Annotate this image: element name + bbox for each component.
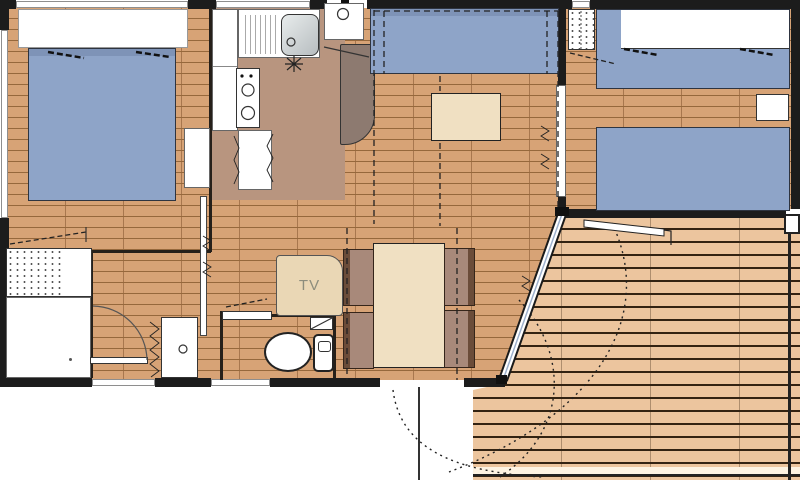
shower-drain — [69, 358, 72, 361]
window — [16, 1, 188, 8]
stove — [236, 68, 260, 128]
chair-back — [468, 249, 474, 305]
wardrobe-left — [6, 248, 92, 297]
wall-bottom — [270, 378, 380, 387]
entrance-door-leaf — [161, 317, 198, 378]
chair-back — [468, 311, 474, 367]
window — [211, 379, 270, 386]
bathroom-door-leaf — [90, 357, 148, 364]
terrace-rail-right — [788, 217, 791, 480]
bedroom2-door — [556, 85, 566, 197]
kitchen-sink-unit — [238, 9, 320, 58]
flush-button — [318, 341, 331, 352]
window — [216, 1, 310, 8]
terrace-rail-bottom — [473, 467, 800, 476]
bedroom1-cabinet — [184, 128, 210, 188]
dining-chair — [444, 310, 475, 368]
tv-cabinet: TV — [276, 255, 343, 316]
sofa-backrest — [371, 9, 558, 16]
double-bed — [28, 48, 176, 201]
sink-bowl — [281, 14, 319, 56]
coffee-table — [431, 93, 501, 141]
cabinet-divider — [213, 66, 237, 67]
water-heater — [324, 3, 364, 40]
wall-top — [590, 0, 800, 9]
nightstand — [756, 94, 789, 121]
wall-left — [0, 0, 9, 30]
wardrobe-right — [568, 9, 595, 50]
toilet-bowl — [264, 332, 312, 372]
toilet-sliding-door — [222, 311, 272, 320]
fridge — [238, 130, 272, 190]
sofa — [370, 8, 559, 74]
wall-toilet-left — [220, 311, 223, 380]
shower-room — [6, 297, 91, 378]
wall-bottom — [0, 378, 92, 387]
toilet-shelf — [310, 317, 333, 330]
dining-table — [373, 243, 445, 368]
hanging-space — [7, 249, 63, 296]
kitchen-cabinet — [212, 9, 238, 131]
terrace-rail-post — [784, 214, 800, 234]
tv-label: TV — [299, 277, 320, 294]
single-bed-bottom — [596, 127, 790, 211]
wall-bottom — [464, 378, 505, 387]
floor-plan: TV — [0, 0, 800, 480]
dining-chair — [444, 248, 475, 306]
window — [92, 379, 155, 386]
hall-folding-door — [200, 196, 207, 336]
dining-chair — [343, 249, 374, 306]
entry-step — [418, 387, 473, 480]
mattress-edge — [29, 49, 175, 56]
window — [572, 1, 590, 8]
chair-back — [344, 313, 350, 368]
window — [1, 30, 8, 218]
dining-chair — [343, 312, 374, 369]
toilet-cistern — [313, 334, 334, 372]
drainboard — [245, 15, 279, 54]
single-bed-top — [596, 9, 790, 89]
double-bed-headboard — [18, 9, 188, 48]
wall-bottom — [155, 378, 211, 387]
chair-back — [344, 250, 350, 305]
wall-right — [791, 0, 800, 209]
bed-sheet — [621, 10, 789, 49]
